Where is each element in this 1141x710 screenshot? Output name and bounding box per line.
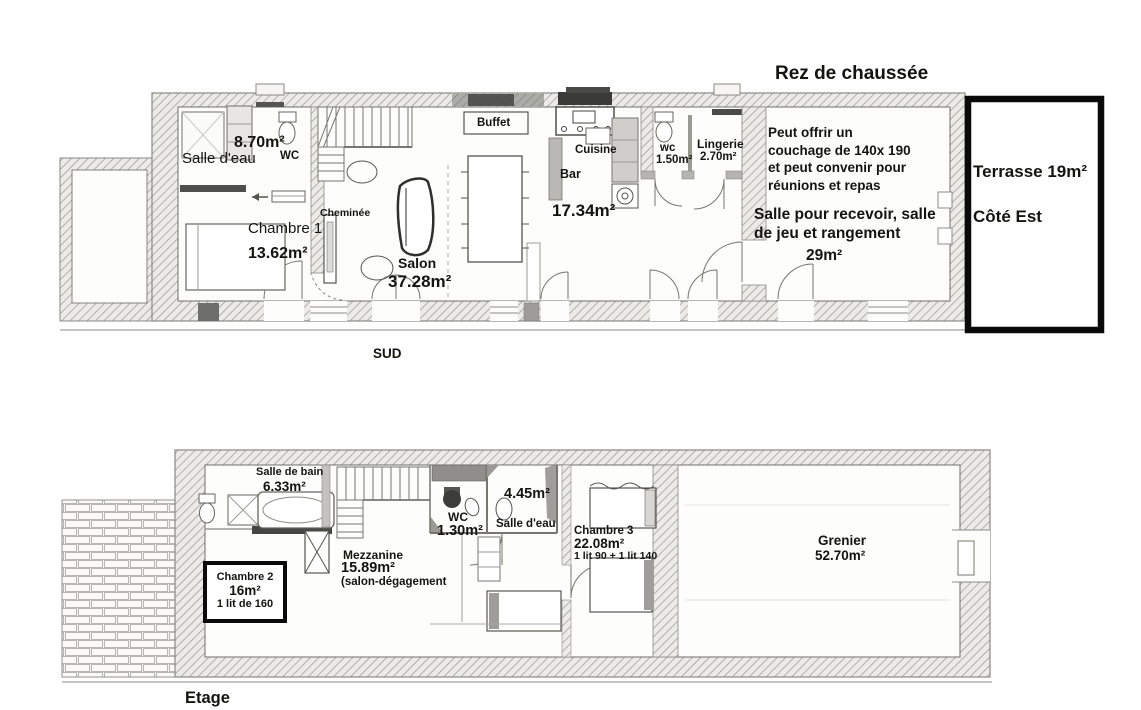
dining-furniture-icon bbox=[461, 112, 529, 262]
upper-salle-eau-label: Salle d'eau bbox=[496, 517, 556, 531]
fireplace-icon bbox=[324, 215, 336, 283]
salle-eau-label: Salle d'eau bbox=[182, 150, 256, 169]
tiled-terrace bbox=[62, 500, 175, 677]
cuisine-label: Cuisine bbox=[575, 143, 617, 157]
upper-salle-eau-area-label: 4.45m² bbox=[504, 486, 550, 504]
wc-label: WC bbox=[280, 149, 299, 163]
floor-plan-drawing bbox=[0, 0, 1141, 710]
upper-floor-plan bbox=[62, 450, 992, 682]
upper-floor-title: Etage bbox=[185, 688, 230, 708]
chambre1-area-label: 13.62m² bbox=[248, 244, 308, 264]
reception-note: Peut offrir un couchage de 140x 190 et p… bbox=[768, 124, 911, 194]
ground-floor-title: Rez de chaussée bbox=[775, 62, 928, 86]
toilet-icon bbox=[655, 112, 673, 142]
cote-est-label: Côté Est bbox=[973, 206, 1042, 227]
lingerie-area-label: 2.70m² bbox=[700, 150, 736, 164]
salle-de-bain-area-label: 6.33m² bbox=[263, 479, 306, 496]
bar-label: Bar bbox=[560, 167, 581, 183]
sud-label: SUD bbox=[373, 346, 402, 363]
reception-area-label: 29m² bbox=[806, 246, 842, 265]
wc2-area-label: 1.50m² bbox=[656, 153, 692, 167]
chambre1-label: Chambre 1 bbox=[248, 220, 322, 239]
terrasse-label: Terrasse 19m² bbox=[973, 161, 1087, 182]
grenier-area-label: 52.70m² bbox=[815, 548, 865, 565]
floor-plan-document: Rez de chaussée 8.70m² WC Salle d'eau Ch… bbox=[0, 0, 1141, 710]
mezzanine-note-label: (salon-dégagement bbox=[341, 575, 446, 589]
ground-floor-annex bbox=[60, 158, 152, 321]
salle-de-bain-label: Salle de bain bbox=[256, 466, 323, 480]
cheminee-label: Cheminée bbox=[320, 207, 370, 220]
reception-label: Salle pour recevoir, salle de jeu et ran… bbox=[754, 205, 936, 244]
upper-wc-area-label: 1.30m² bbox=[437, 523, 483, 541]
cuisine-area-label: 17.34m² bbox=[552, 200, 615, 221]
buffet-label: Buffet bbox=[477, 116, 510, 130]
chambre3-beds-label: 1 lit 90 + 1 lit 140 bbox=[574, 550, 657, 563]
salon-area-label: 37.28m² bbox=[388, 271, 451, 292]
salon-label: Salon bbox=[398, 255, 436, 272]
chambre2-bed-label: 1 lit de 160 bbox=[205, 598, 285, 612]
